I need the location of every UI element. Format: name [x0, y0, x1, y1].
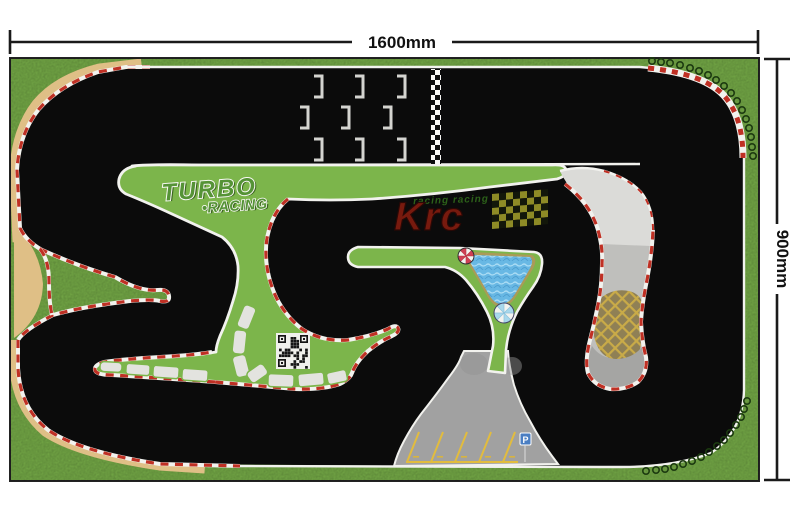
svg-text:P: P — [522, 435, 528, 445]
svg-text:1600mm: 1600mm — [368, 33, 436, 52]
svg-text:Krc: Krc — [394, 195, 464, 239]
svg-text:900mm: 900mm — [773, 230, 792, 289]
